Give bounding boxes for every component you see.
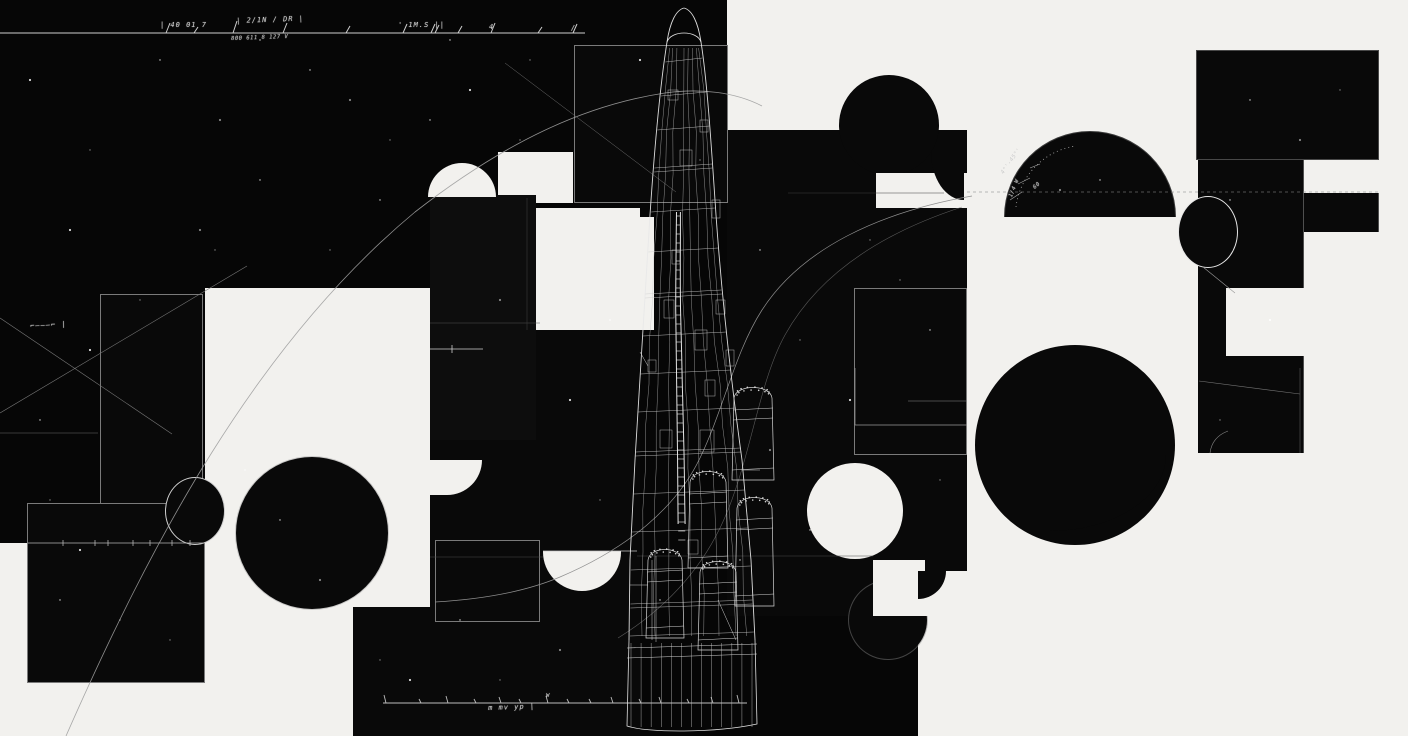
top-ruler-label-2: | 2/1N / DR | [236,15,304,25]
white-block-bottom-right [918,571,1408,736]
left-note: ⌐———⌐ | [30,320,67,330]
white-block-bottom-left [0,683,353,736]
white-circle-mid [807,463,903,559]
top-ruler-sub-label: 800 611 8 127 V [231,34,288,42]
black-block-bottom-center [353,607,430,736]
white-dome-small [428,163,496,197]
top-ruler-label-1: | 40 01 7 [160,21,207,29]
white-square-right [1226,288,1304,356]
white-block-center-large [536,208,640,330]
outlined-rect-center [435,540,540,622]
blueprint-collage-canvas: | 40 01 7 | 2/1N / DR | 800 611 8 127 V … [0,0,1408,736]
top-ruler-label-5: / [571,24,576,32]
black-ellipse-left [165,477,225,545]
outlined-rect-mid-right [854,288,967,455]
black-block-right-step [1304,193,1379,232]
top-ruler-label-3: ' 1M.S || [398,21,445,29]
outlined-rect-top [574,45,728,203]
bottom-ruler-mark: W [546,693,550,699]
white-block-center-step [640,217,654,330]
black-column-b [536,330,640,440]
black-circle-bottom-left [236,457,388,609]
black-ellipse-right [1178,196,1238,268]
top-ruler-label-4: 4 [489,23,494,31]
bottom-ruler-note: m mv yp | [488,702,535,712]
black-column-a [430,195,536,440]
black-circle-top [839,75,939,175]
black-block-top-right-large [1196,50,1379,160]
